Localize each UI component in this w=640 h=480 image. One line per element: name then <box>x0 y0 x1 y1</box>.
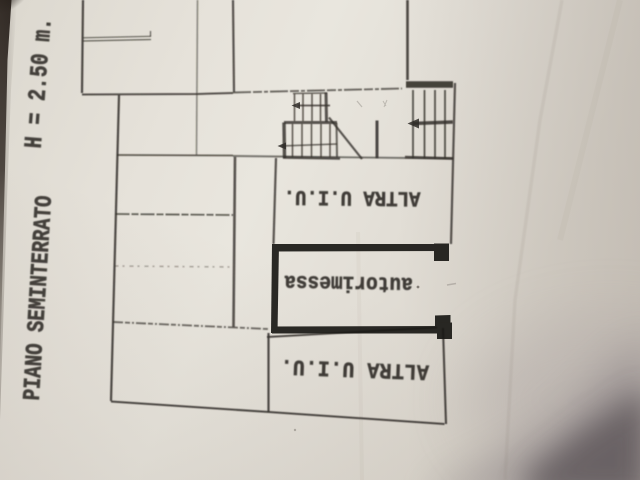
svg-text:ALTRA U.I.U.: ALTRA U.I.U. <box>280 353 430 383</box>
svg-text:ALTRA U.I.U.: ALTRA U.I.U. <box>284 184 421 210</box>
svg-text:H = 2.50 m.: H = 2.50 m. <box>19 17 58 150</box>
svg-text:PIANO SEMINTERRATO: PIANO SEMINTERRATO <box>19 195 59 401</box>
svg-text:autorimessa: autorimessa <box>284 268 413 295</box>
